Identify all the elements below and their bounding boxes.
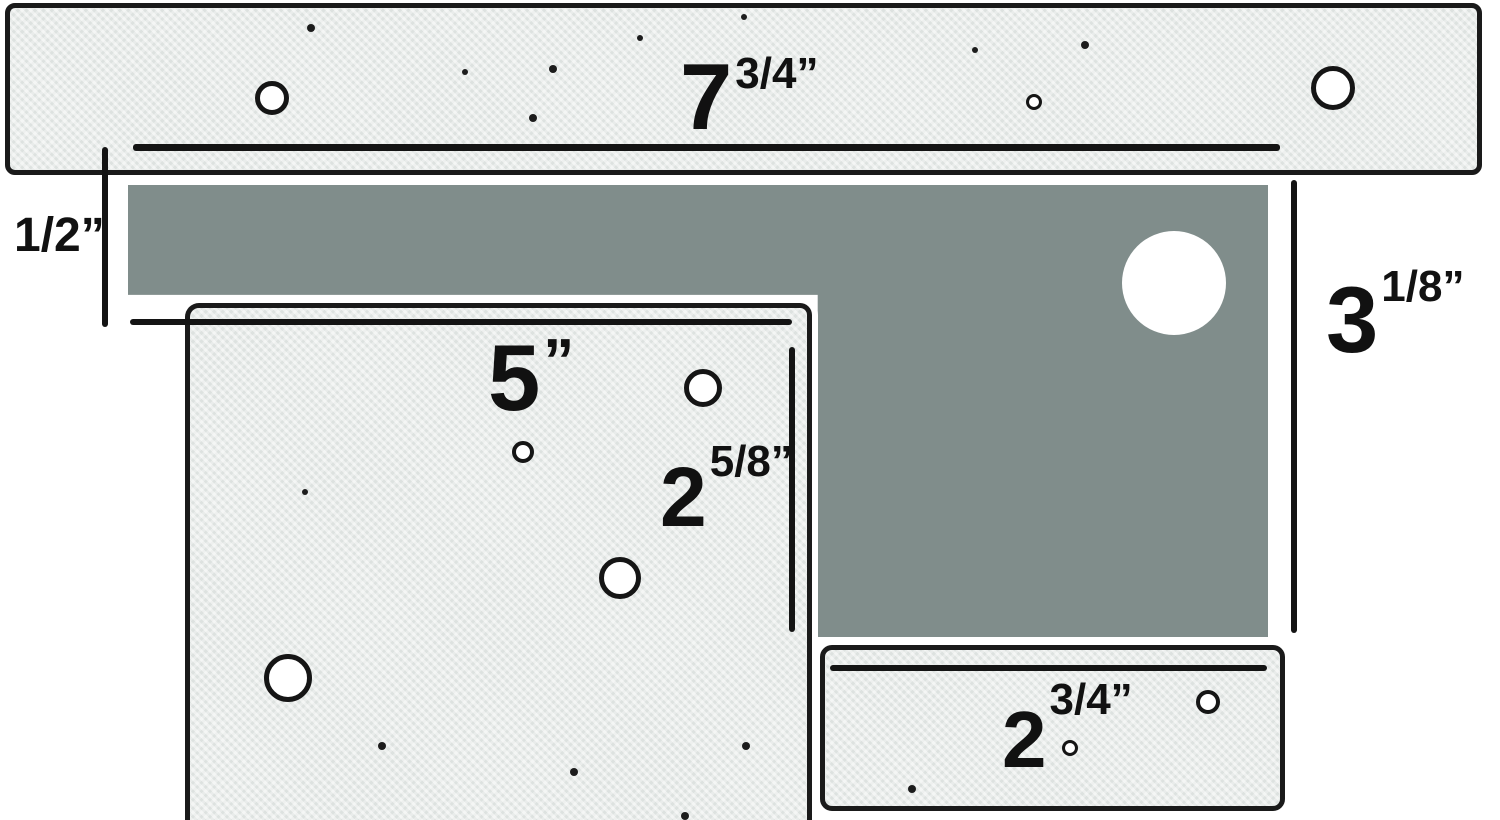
surface-dot — [972, 47, 978, 53]
plate-hole — [1026, 94, 1042, 110]
dim-label-inner-height: 2 5/8” — [660, 445, 793, 539]
dimension-diagram: 7 3/4” 1/2” 5 ” 2 5/8” 3 1/8” 2 3/4” — [0, 0, 1500, 820]
surface-dot — [529, 114, 537, 122]
surface-dot — [637, 35, 643, 41]
surface-dot — [908, 785, 916, 793]
large-cutout-circle — [1122, 231, 1226, 335]
surface-dot — [549, 65, 557, 73]
surface-dot — [462, 69, 468, 75]
dim-fraction: 3/4” — [1050, 678, 1133, 722]
plate-hole — [255, 81, 289, 115]
surface-dot — [307, 24, 315, 32]
dim-fraction: 3/4” — [735, 52, 818, 96]
plate-hole — [1311, 66, 1355, 110]
surface-dot — [741, 14, 747, 20]
dim-value: 1/2” — [14, 212, 105, 260]
dim-label-side-height: 3 1/8” — [1326, 268, 1464, 367]
dim-value: 7 — [680, 50, 732, 144]
surface-dot — [302, 489, 308, 495]
dim-fraction: ” — [543, 331, 574, 393]
dim-fraction: 5/8” — [710, 440, 793, 484]
dim-value: 3 — [1326, 273, 1378, 367]
plate-hole — [512, 441, 534, 463]
dim-line-bottom-width — [830, 665, 1267, 671]
dim-line-side-height — [1291, 180, 1297, 633]
plate-hole — [264, 654, 312, 702]
dim-label-top-width: 7 3/4” — [680, 50, 818, 144]
dim-label-plate-width: 5 ” — [488, 331, 574, 425]
surface-dot — [1081, 41, 1089, 49]
surface-dot — [378, 742, 386, 750]
dim-label-bottom-width: 2 3/4” — [1002, 678, 1133, 780]
plate-hole — [1196, 690, 1220, 714]
dim-fraction: 1/8” — [1381, 265, 1464, 309]
plate-hole — [684, 369, 722, 407]
dim-value: 2 — [660, 455, 707, 539]
surface-dot — [742, 742, 750, 750]
dim-value: 5 — [488, 331, 540, 425]
dim-label-offset: 1/2” — [14, 212, 105, 260]
surface-dot — [570, 768, 578, 776]
surface-dot — [681, 812, 689, 820]
plate-hole — [599, 557, 641, 599]
dim-line-plate-width — [130, 319, 792, 325]
dim-value: 2 — [1002, 700, 1047, 780]
